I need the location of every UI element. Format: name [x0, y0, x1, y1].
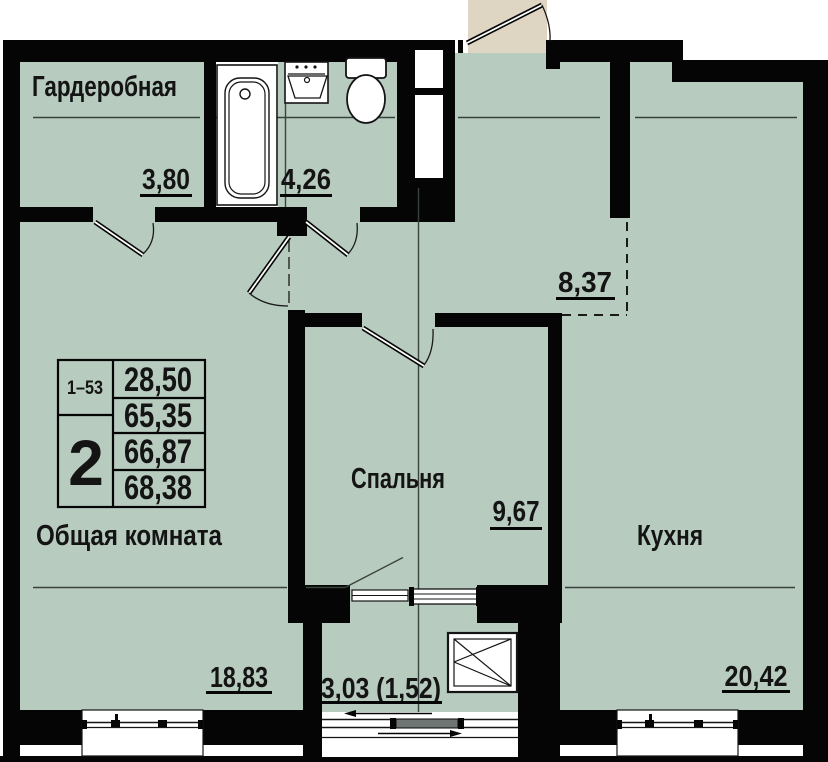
wall-bottom-3 — [560, 710, 617, 745]
wall-right — [803, 60, 828, 762]
wall-bottom-4 — [738, 710, 828, 745]
balcony-area: 3,03 (1,52) — [321, 673, 441, 705]
wall-wardrobe-bath — [204, 62, 216, 208]
wall-bedroom-right — [548, 313, 562, 585]
bedroom-area: 9,67 — [493, 496, 540, 528]
kitchen-window — [617, 710, 738, 756]
wardrobe-area-underline — [140, 194, 192, 197]
wall-top-left — [3, 40, 455, 62]
bathroom-area-underline — [280, 194, 332, 197]
wall-kitchen-divider — [610, 62, 630, 218]
kitchen-area: 20,42 — [725, 661, 788, 693]
info-stamp-table: 1–53 2 28,50 65,35 66,87 68,38 — [58, 360, 205, 507]
wardrobe-area: 3,80 — [142, 164, 190, 196]
stamp-area-3: 66,87 — [124, 433, 192, 471]
stamp-room-count: 2 — [68, 427, 104, 499]
stamp-area-1: 28,50 — [124, 361, 192, 399]
balcony-door-threshold — [352, 590, 408, 601]
wall-top-mid — [546, 40, 683, 62]
bathroom-area: 4,26 — [281, 164, 331, 196]
stamp-area-2: 65,35 — [124, 397, 192, 435]
wall-balcony-block-l — [288, 585, 350, 623]
wall-balcony-col-l — [303, 623, 322, 756]
balcony-glazing — [322, 710, 518, 757]
living-room-area-underline — [206, 691, 272, 694]
bathtub-icon — [217, 65, 277, 205]
wall-door-jamb-left — [458, 40, 463, 53]
wall-wardrobe-bottom-r — [155, 207, 307, 222]
wall-left — [3, 40, 20, 762]
stamp-area-4: 68,38 — [124, 469, 192, 507]
floor-plan-drawing: 1–53 2 28,50 65,35 66,87 68,38 Гардеробн… — [0, 0, 828, 762]
living-room-area: 18,83 — [210, 662, 268, 694]
balcony-area-underline — [320, 701, 442, 704]
toilet-icon — [346, 58, 386, 123]
kitchen-label: Кухня — [637, 520, 703, 552]
stamp-apartment-numbers: 1–53 — [67, 378, 103, 399]
wall-wardrobe-bottom-l — [20, 207, 93, 222]
wall-bottom-2 — [203, 710, 303, 745]
wardrobe-label: Гардеробная — [32, 71, 177, 103]
sink-icon — [285, 62, 328, 103]
bedroom-area-underline — [490, 527, 542, 530]
wall-bath-bottom — [360, 207, 455, 222]
living-room-window — [82, 710, 203, 756]
hallway-area-underline — [556, 297, 615, 300]
bedroom-label: Спальня — [351, 463, 445, 495]
floor-plan: 1–53 2 28,50 65,35 66,87 68,38 Гардеробн… — [0, 0, 828, 762]
wall-door-post — [277, 222, 307, 236]
balcony-window — [409, 587, 481, 606]
wall-bedroom-top-r — [435, 313, 562, 327]
wall-bedroom-left — [288, 310, 305, 623]
balcony-open-window-icon — [448, 633, 517, 692]
kitchen-area-underline — [722, 690, 790, 693]
wall-balcony-col-r — [518, 585, 560, 756]
hallway-area: 8,37 — [558, 267, 612, 299]
wall-door-jamb — [546, 62, 560, 69]
wall-bottom-1 — [3, 710, 82, 745]
duct-openings — [415, 50, 443, 178]
living-room-label: Общая комната — [36, 520, 223, 552]
